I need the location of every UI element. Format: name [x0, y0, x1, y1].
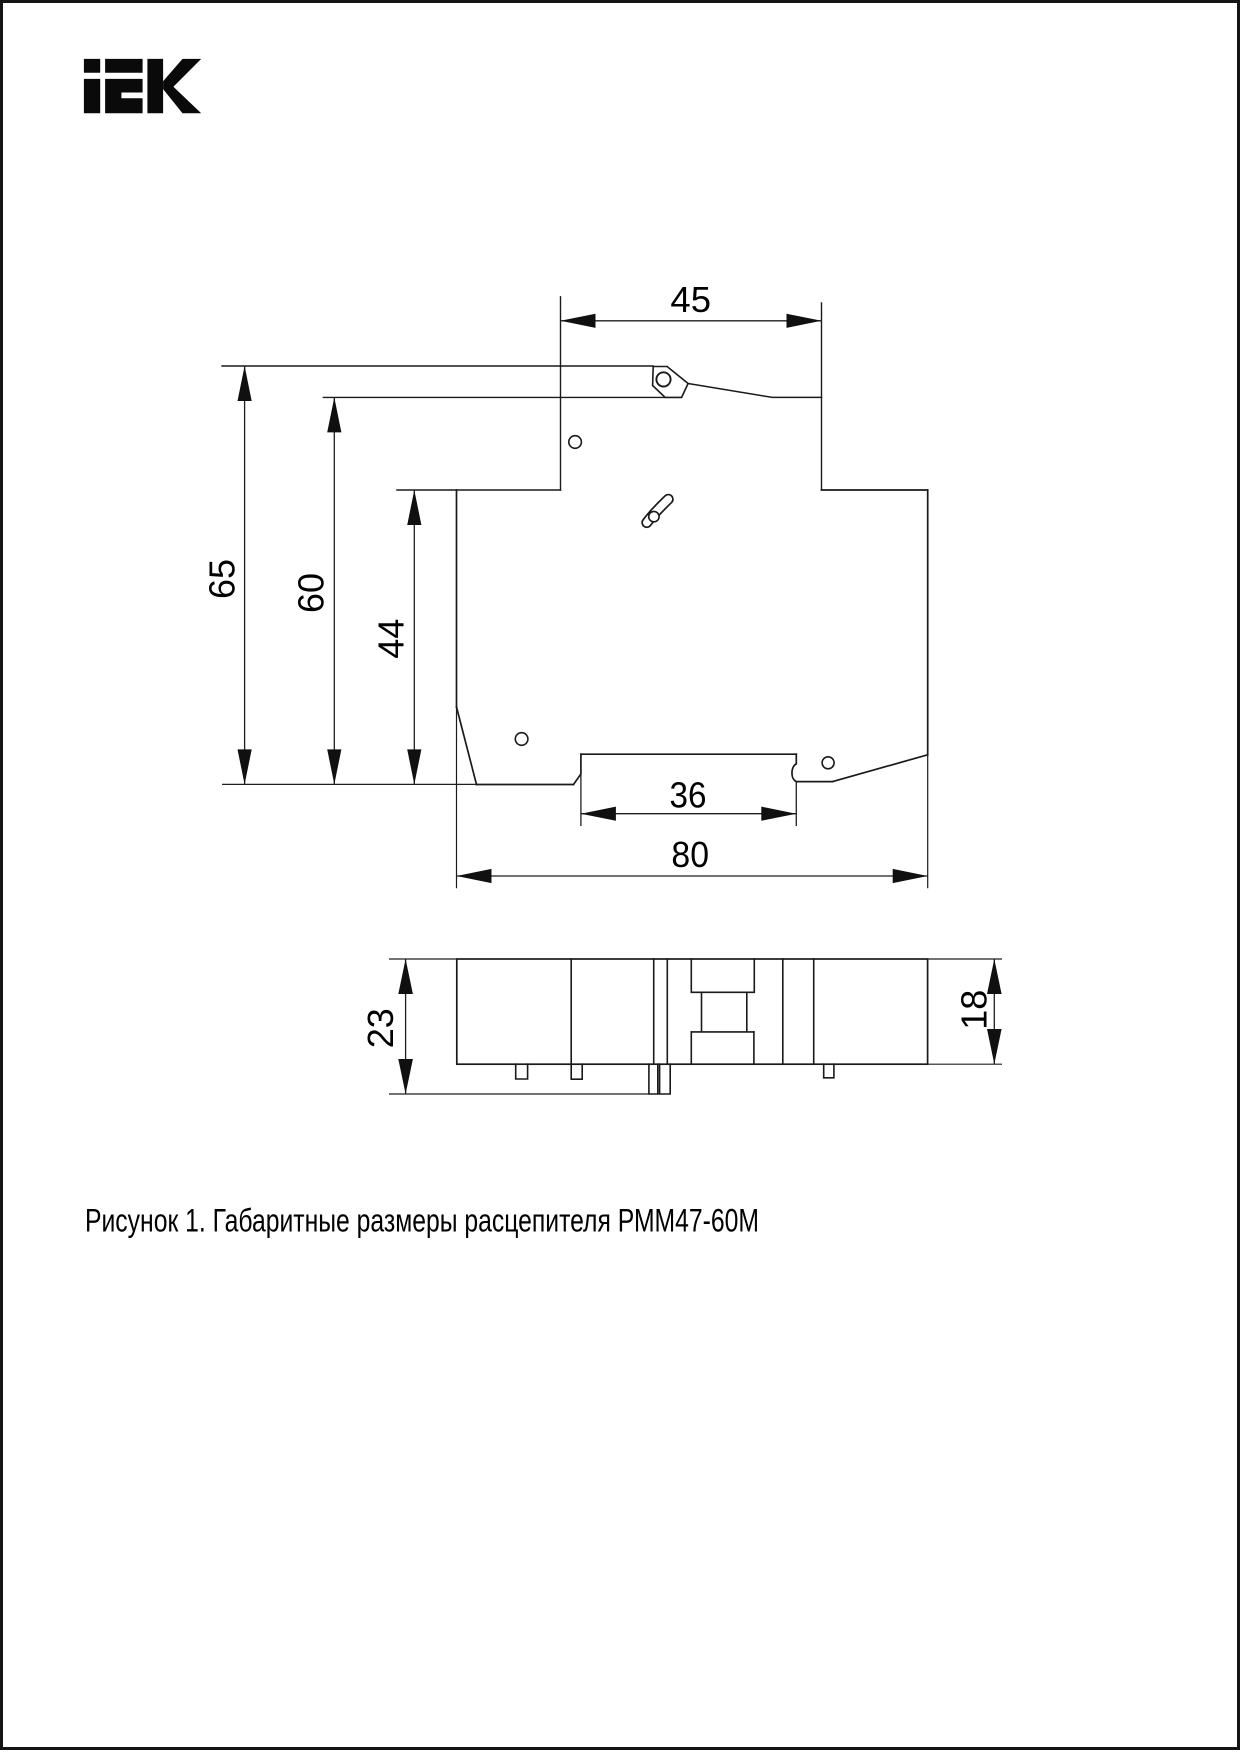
svg-text:23: 23 — [360, 1008, 401, 1048]
svg-text:45: 45 — [670, 279, 711, 320]
svg-text:18: 18 — [954, 990, 995, 1030]
svg-text:65: 65 — [202, 559, 243, 599]
svg-text:Рисунок 1. Габаритные размеры: Рисунок 1. Габаритные размеры расцепител… — [85, 1203, 759, 1239]
svg-text:80: 80 — [671, 834, 709, 875]
svg-text:60: 60 — [291, 573, 332, 613]
svg-text:36: 36 — [670, 775, 707, 816]
svg-text:44: 44 — [371, 619, 412, 659]
